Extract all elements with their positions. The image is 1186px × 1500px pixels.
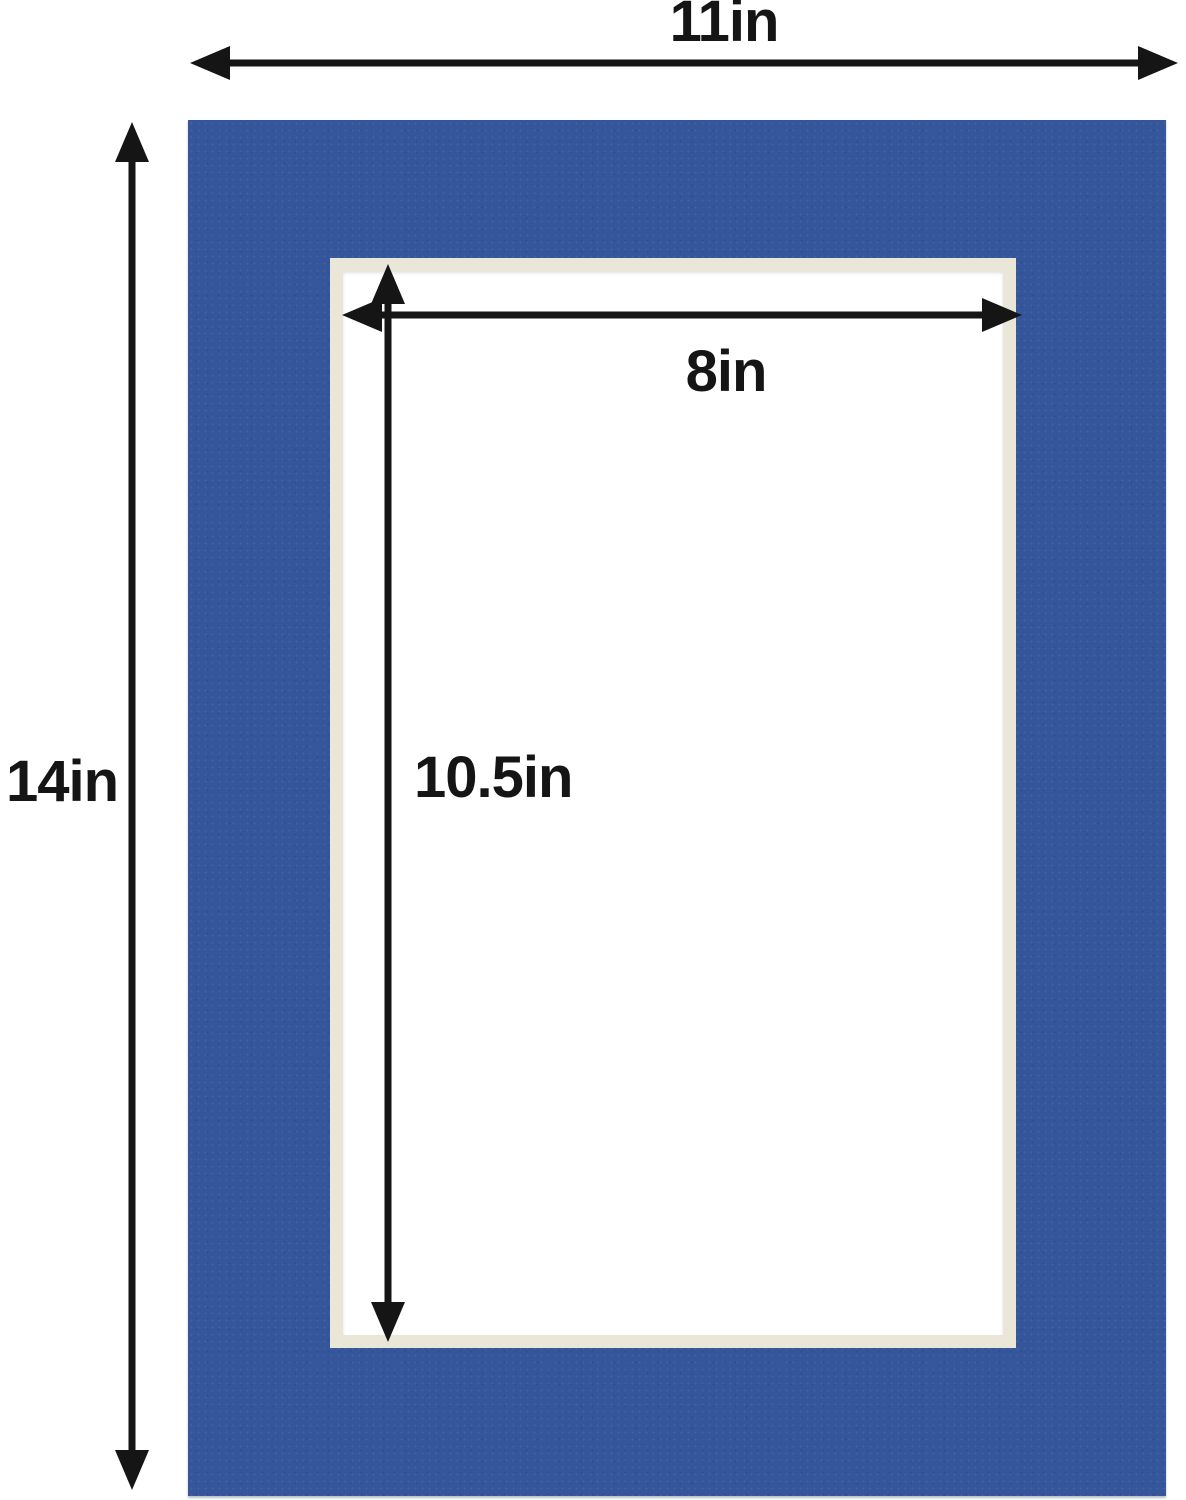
arrow-line xyxy=(222,60,1146,67)
outer-width-label: 11in xyxy=(599,0,849,52)
arrow-line xyxy=(374,312,990,319)
opening-width-arrow-icon xyxy=(342,297,1022,333)
outer-height-label: 14in xyxy=(0,752,124,812)
opening-height-arrow-icon xyxy=(370,264,406,1342)
arrow-line xyxy=(129,154,136,1458)
arrow-line xyxy=(385,296,392,1310)
mat-dimension-diagram: 11in 14in 8in 10.5in xyxy=(0,0,1186,1500)
opening-width-label: 8in xyxy=(626,342,826,402)
opening-height-label: 10.5in xyxy=(414,748,572,808)
